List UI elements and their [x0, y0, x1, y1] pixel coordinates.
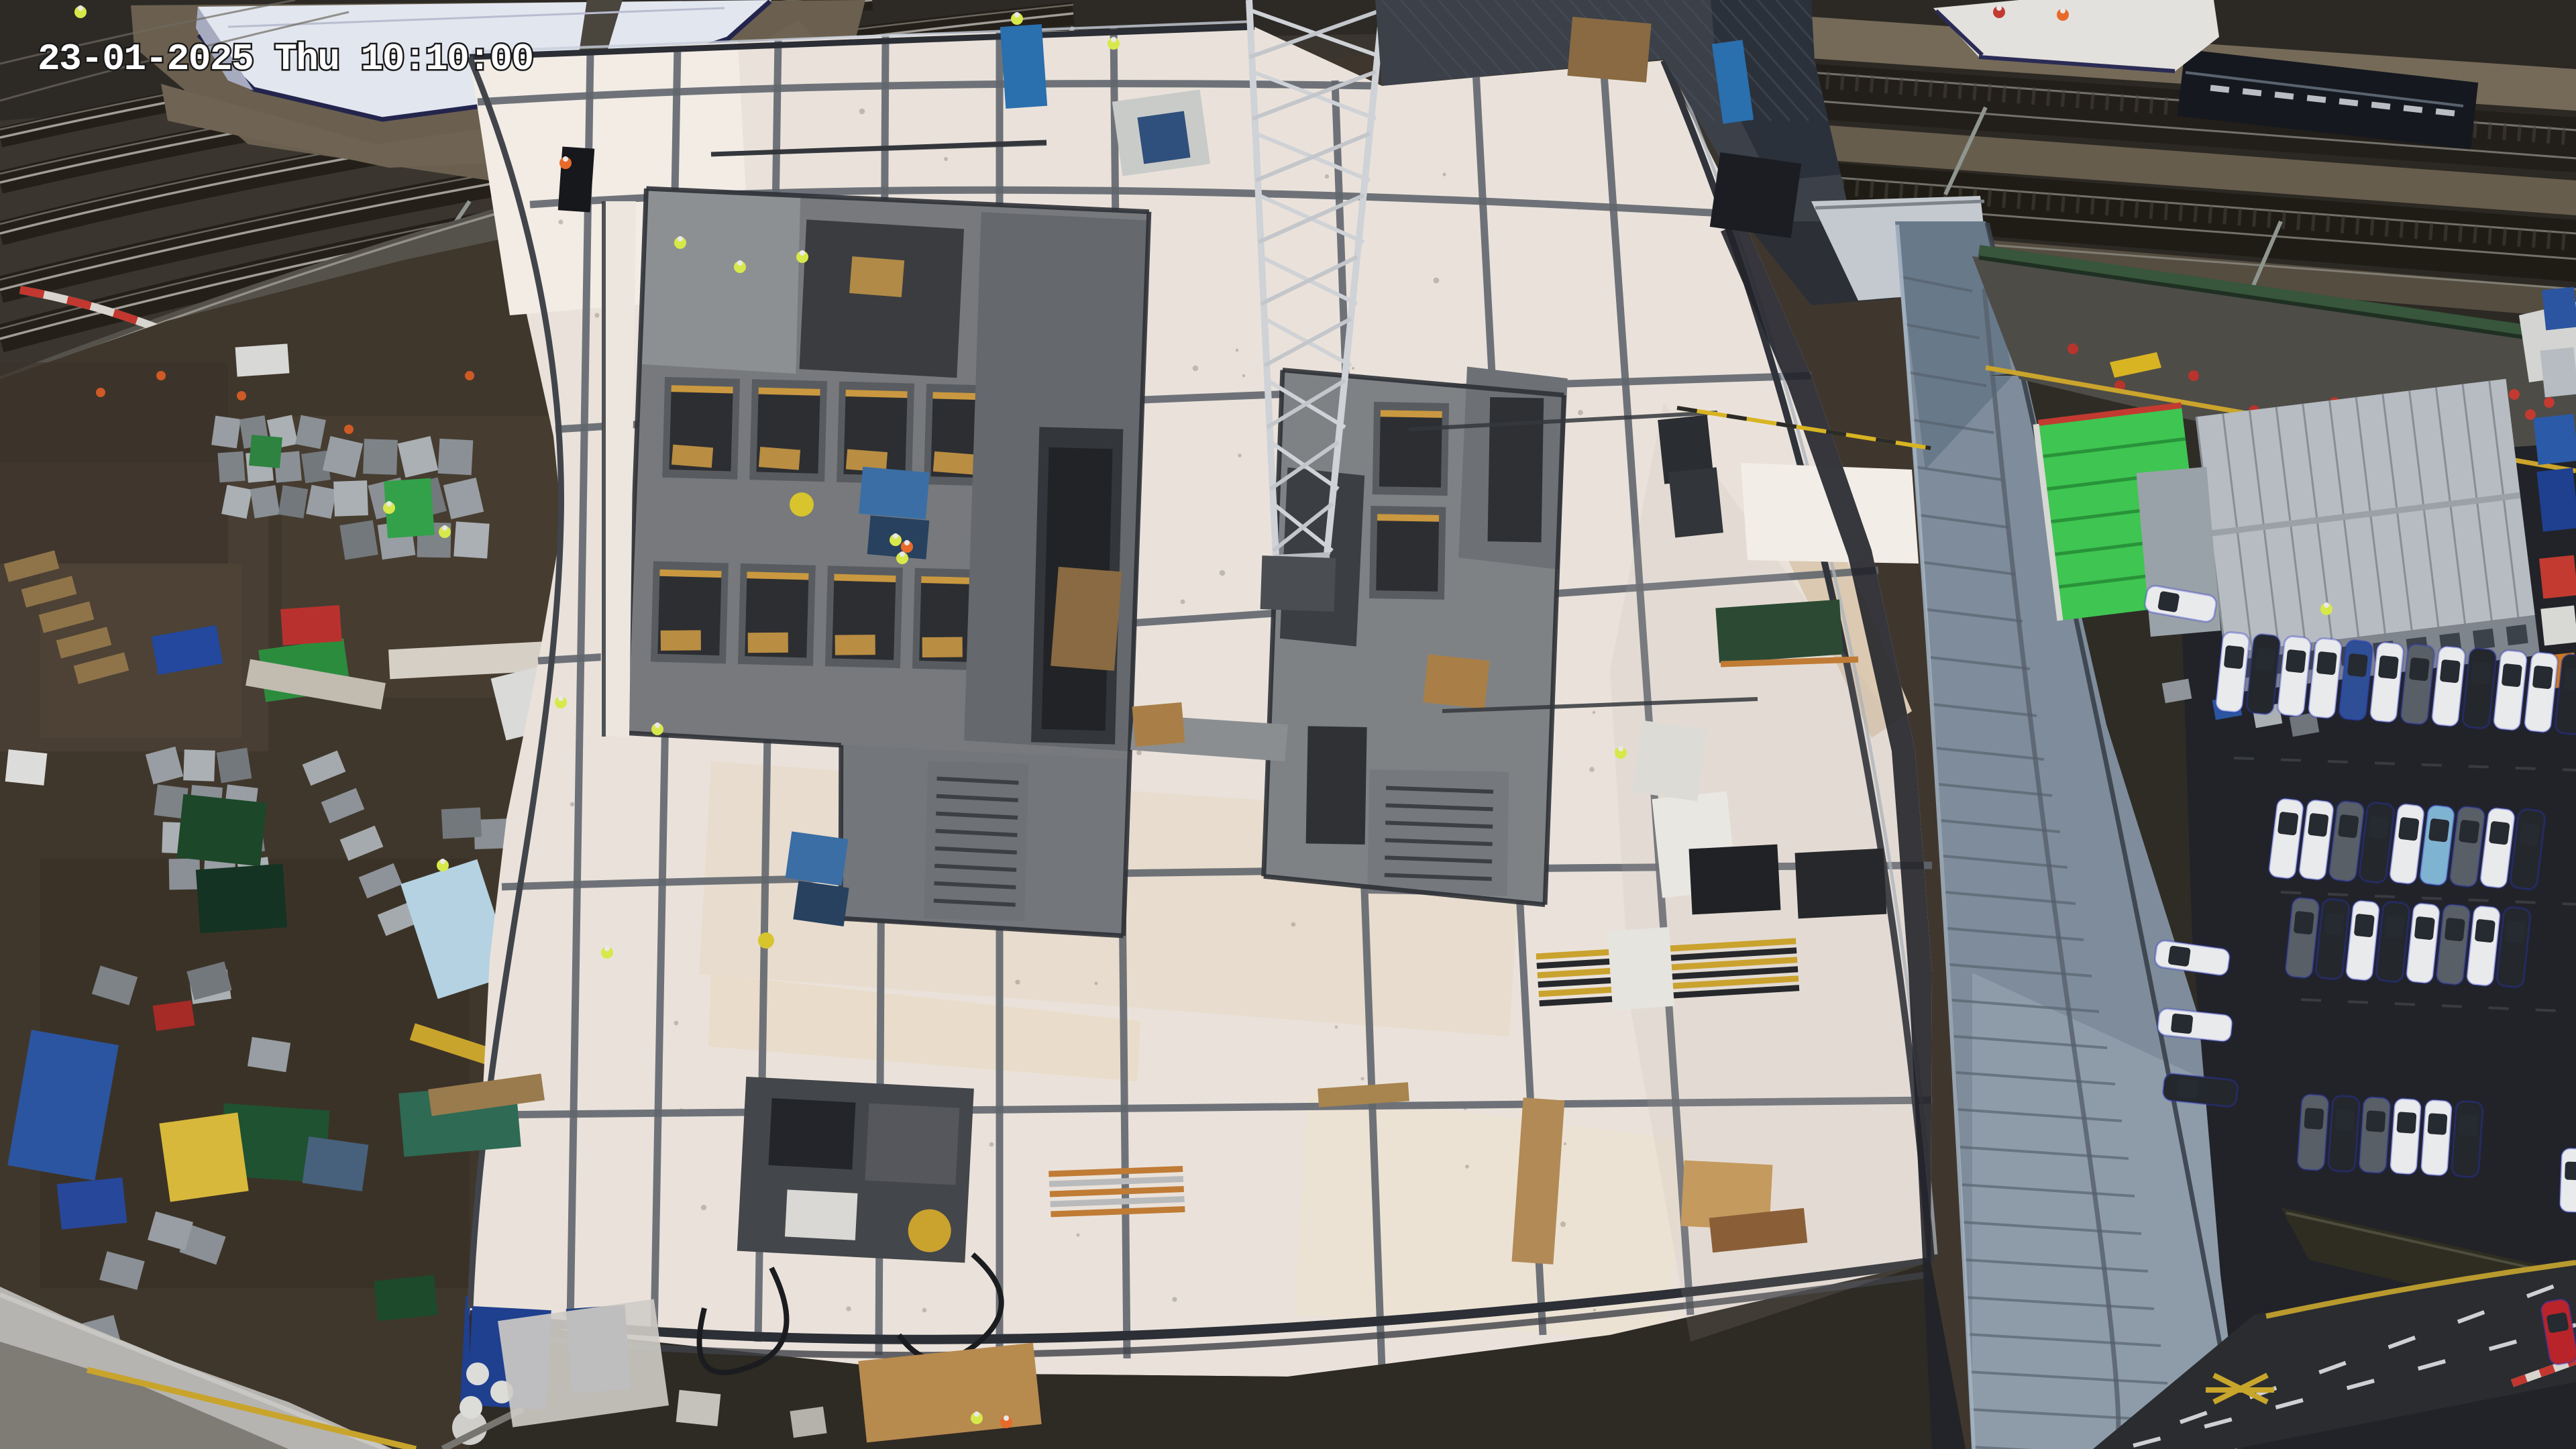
svg-text:23-01-2025 Thu 10:10:00: 23-01-2025 Thu 10:10:00 — [38, 38, 534, 80]
